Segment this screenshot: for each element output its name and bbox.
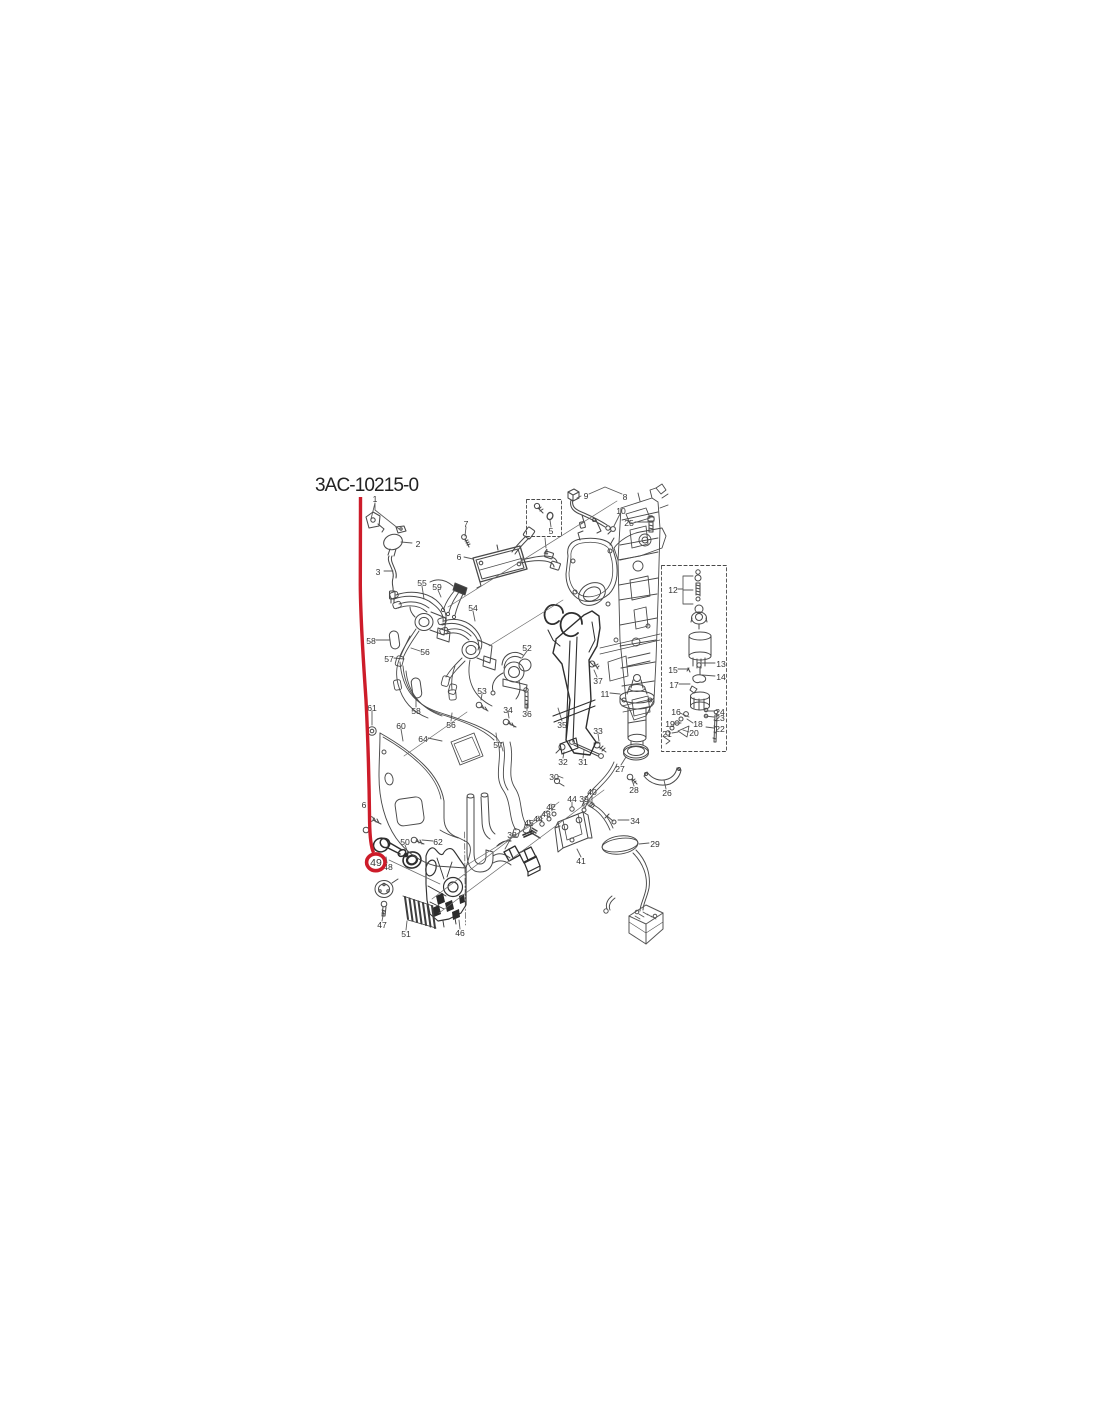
svg-text:7: 7 [464, 519, 469, 529]
svg-text:52: 52 [522, 643, 532, 653]
svg-text:53: 53 [477, 686, 487, 696]
svg-text:29: 29 [650, 839, 660, 849]
svg-text:32: 32 [558, 757, 568, 767]
svg-text:46: 46 [455, 928, 465, 938]
svg-text:16: 16 [671, 707, 681, 717]
svg-text:35: 35 [557, 720, 567, 730]
svg-text:59: 59 [432, 582, 442, 592]
svg-text:41: 41 [576, 856, 586, 866]
svg-text:61: 61 [367, 703, 377, 713]
svg-text:2: 2 [416, 539, 421, 549]
svg-text:36: 36 [522, 709, 532, 719]
svg-text:11: 11 [601, 689, 610, 699]
svg-text:34: 34 [503, 705, 513, 715]
svg-text:6: 6 [362, 800, 367, 810]
svg-text:34: 34 [630, 816, 640, 826]
svg-text:20: 20 [689, 728, 699, 738]
svg-text:62: 62 [433, 837, 443, 847]
svg-text:56: 56 [420, 647, 430, 657]
svg-text:26: 26 [662, 788, 672, 798]
svg-text:56: 56 [446, 720, 456, 730]
svg-text:14: 14 [716, 672, 726, 682]
svg-text:49: 49 [370, 857, 382, 869]
svg-text:6: 6 [457, 552, 462, 562]
svg-text:55: 55 [417, 578, 427, 588]
svg-text:9: 9 [584, 491, 589, 501]
svg-text:51: 51 [401, 929, 411, 939]
svg-text:54: 54 [468, 603, 478, 613]
svg-text:57: 57 [384, 654, 394, 664]
svg-text:31: 31 [578, 757, 588, 767]
svg-text:13: 13 [716, 659, 726, 669]
svg-text:60: 60 [396, 721, 406, 731]
svg-text:58: 58 [366, 636, 376, 646]
svg-text:5: 5 [549, 526, 554, 536]
svg-text:47: 47 [377, 920, 387, 930]
svg-text:3AC-10215-0: 3AC-10215-0 [315, 475, 418, 496]
svg-text:12: 12 [668, 585, 678, 595]
svg-text:33: 33 [593, 726, 603, 736]
svg-text:8: 8 [623, 492, 628, 502]
svg-text:3: 3 [376, 567, 381, 577]
svg-text:15: 15 [668, 665, 678, 675]
svg-text:28: 28 [629, 785, 639, 795]
svg-text:44: 44 [567, 794, 577, 804]
svg-text:17: 17 [669, 680, 679, 690]
svg-text:37: 37 [593, 676, 603, 686]
